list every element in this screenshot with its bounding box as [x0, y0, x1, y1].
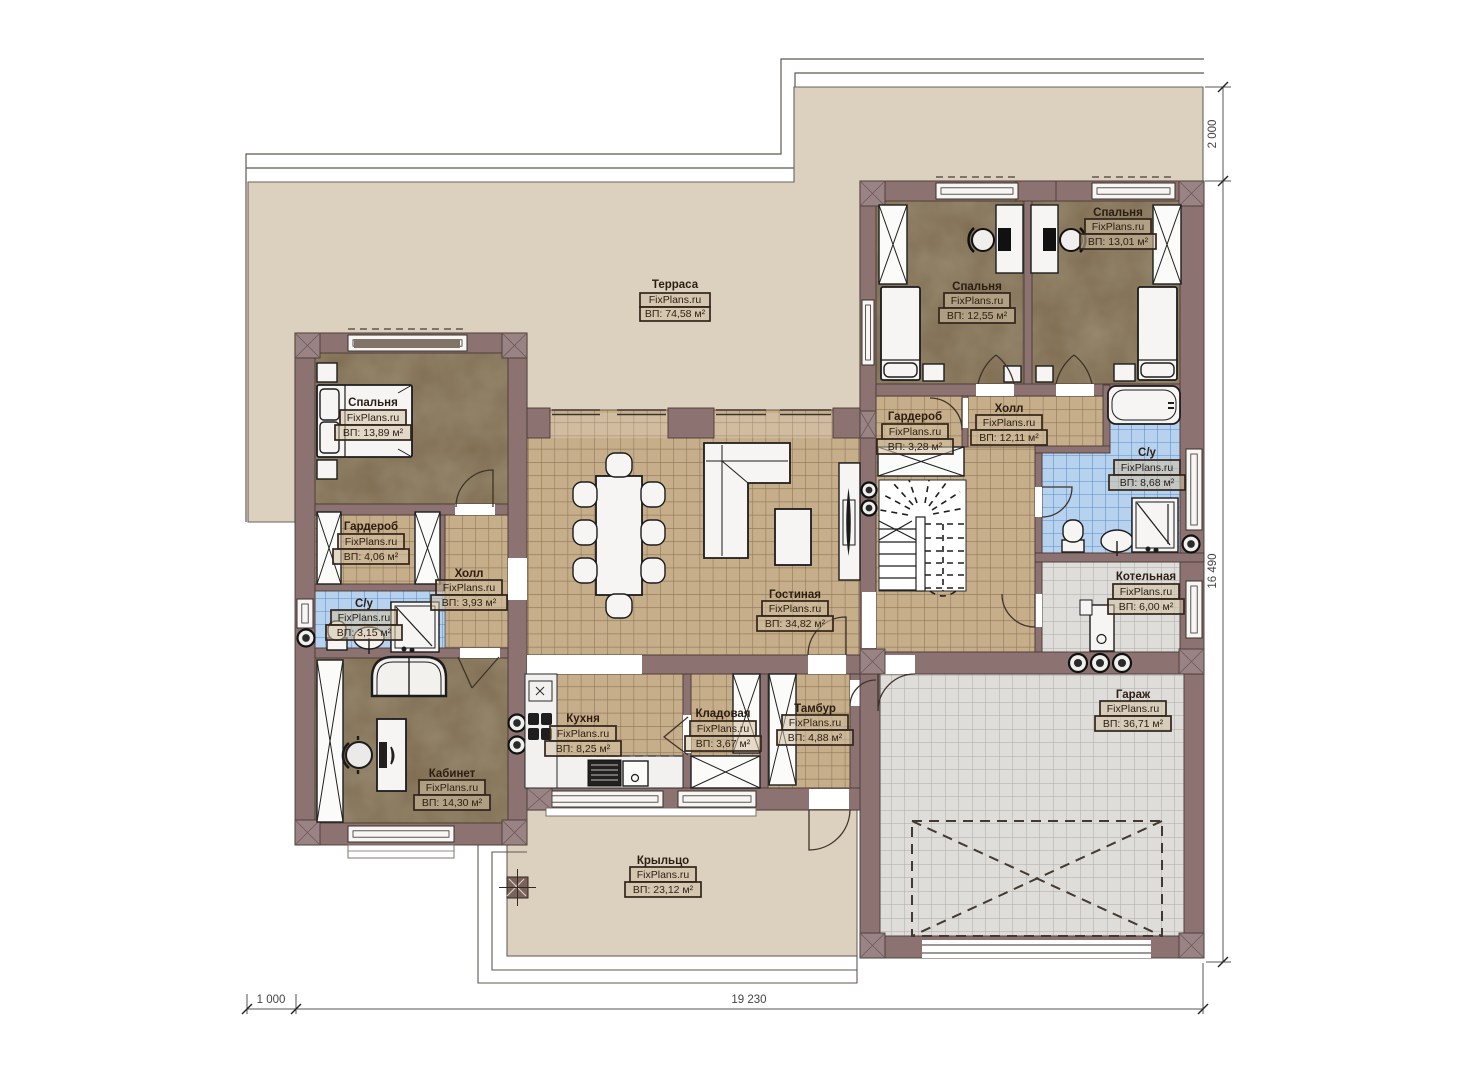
svg-text:ВП: 12,11 м²: ВП: 12,11 м² — [979, 432, 1039, 444]
svg-text:FixPlans.ru: FixPlans.ru — [697, 723, 750, 735]
svg-text:ВП: 8,68 м²: ВП: 8,68 м² — [1120, 477, 1175, 489]
svg-text:Спальня: Спальня — [952, 281, 1002, 293]
svg-text:Крыльцо: Крыльцо — [637, 855, 689, 867]
svg-text:Гардероб: Гардероб — [344, 521, 398, 533]
svg-text:ВП: 3,67 м²: ВП: 3,67 м² — [696, 738, 751, 750]
svg-text:ВП: 13,01 м²: ВП: 13,01 м² — [1088, 236, 1149, 248]
svg-text:ВП: 3,15 м²: ВП: 3,15 м² — [337, 627, 392, 639]
svg-text:ВП: 3,93 м²: ВП: 3,93 м² — [442, 597, 497, 609]
svg-text:FixPlans.ru: FixPlans.ru — [789, 717, 842, 729]
svg-text:ВП: 3,28 м²: ВП: 3,28 м² — [888, 441, 943, 453]
svg-text:ВП: 34,82 м²: ВП: 34,82 м² — [765, 618, 826, 630]
svg-text:FixPlans.ru: FixPlans.ru — [649, 294, 702, 306]
svg-text:19 230: 19 230 — [731, 994, 766, 1006]
svg-text:FixPlans.ru: FixPlans.ru — [1107, 703, 1160, 715]
svg-text:С/у: С/у — [355, 598, 374, 610]
svg-text:FixPlans.ru: FixPlans.ru — [1092, 221, 1145, 233]
svg-text:FixPlans.ru: FixPlans.ru — [347, 412, 400, 424]
svg-text:FixPlans.ru: FixPlans.ru — [426, 782, 479, 794]
svg-text:FixPlans.ru: FixPlans.ru — [1121, 462, 1174, 474]
svg-text:Холл: Холл — [995, 403, 1024, 415]
svg-text:Котельная: Котельная — [1116, 571, 1176, 583]
svg-text:FixPlans.ru: FixPlans.ru — [637, 869, 690, 881]
svg-text:Спальня: Спальня — [1093, 207, 1143, 219]
svg-text:FixPlans.ru: FixPlans.ru — [951, 295, 1004, 307]
svg-text:ВП: 74,58 м²: ВП: 74,58 м² — [645, 308, 706, 320]
svg-text:Кухня: Кухня — [566, 713, 600, 725]
svg-text:Кабинет: Кабинет — [429, 768, 476, 780]
svg-text:Гардероб: Гардероб — [888, 411, 942, 423]
svg-text:ВП: 6,00 м²: ВП: 6,00 м² — [1119, 601, 1174, 613]
svg-text:ВП: 14,30 м²: ВП: 14,30 м² — [422, 797, 483, 809]
svg-text:Терраса: Терраса — [652, 279, 699, 291]
svg-text:ВП: 23,12 м²: ВП: 23,12 м² — [633, 884, 694, 896]
svg-text:1 000: 1 000 — [257, 994, 286, 1006]
svg-text:Холл: Холл — [455, 568, 484, 580]
svg-text:FixPlans.ru: FixPlans.ru — [338, 612, 391, 624]
svg-text:FixPlans.ru: FixPlans.ru — [769, 603, 822, 615]
svg-text:Тамбур: Тамбур — [794, 703, 836, 715]
svg-text:ВП: 36,71 м²: ВП: 36,71 м² — [1103, 718, 1164, 730]
svg-text:FixPlans.ru: FixPlans.ru — [889, 426, 942, 438]
svg-text:FixPlans.ru: FixPlans.ru — [345, 536, 398, 548]
svg-text:С/у: С/у — [1138, 447, 1157, 459]
svg-text:FixPlans.ru: FixPlans.ru — [1120, 586, 1173, 598]
svg-text:Кладовая: Кладовая — [695, 708, 750, 720]
svg-text:ВП: 4,06 м²: ВП: 4,06 м² — [344, 551, 399, 563]
svg-text:2 000: 2 000 — [1207, 120, 1219, 149]
svg-text:ВП: 8,25 м²: ВП: 8,25 м² — [556, 743, 611, 755]
svg-text:16 490: 16 490 — [1207, 553, 1219, 588]
svg-text:ВП: 12,55 м²: ВП: 12,55 м² — [947, 310, 1008, 322]
svg-text:Гостиная: Гостиная — [769, 589, 821, 601]
svg-text:Спальня: Спальня — [348, 397, 398, 409]
svg-text:FixPlans.ru: FixPlans.ru — [557, 728, 610, 740]
svg-text:Гараж: Гараж — [1116, 689, 1151, 701]
svg-text:FixPlans.ru: FixPlans.ru — [983, 417, 1036, 429]
svg-text:ВП: 13,89 м²: ВП: 13,89 м² — [343, 427, 404, 439]
svg-text:ВП: 4,88 м²: ВП: 4,88 м² — [788, 732, 843, 744]
svg-text:FixPlans.ru: FixPlans.ru — [443, 582, 496, 594]
